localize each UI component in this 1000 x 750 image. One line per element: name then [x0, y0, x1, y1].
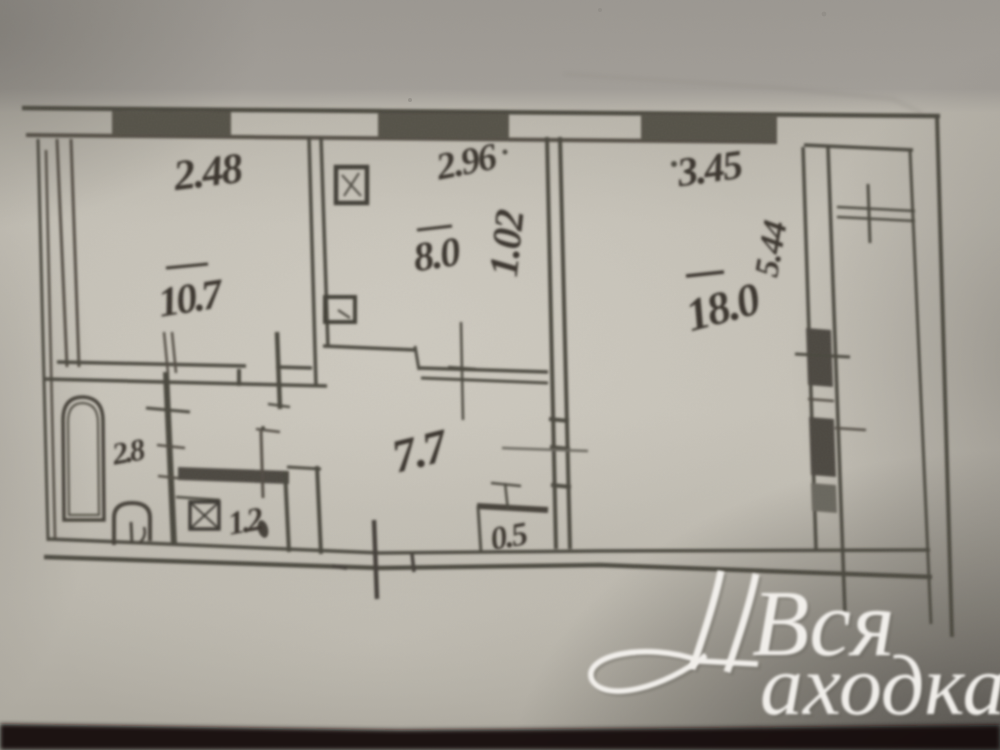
svg-text:аходка: аходка — [760, 637, 1000, 733]
